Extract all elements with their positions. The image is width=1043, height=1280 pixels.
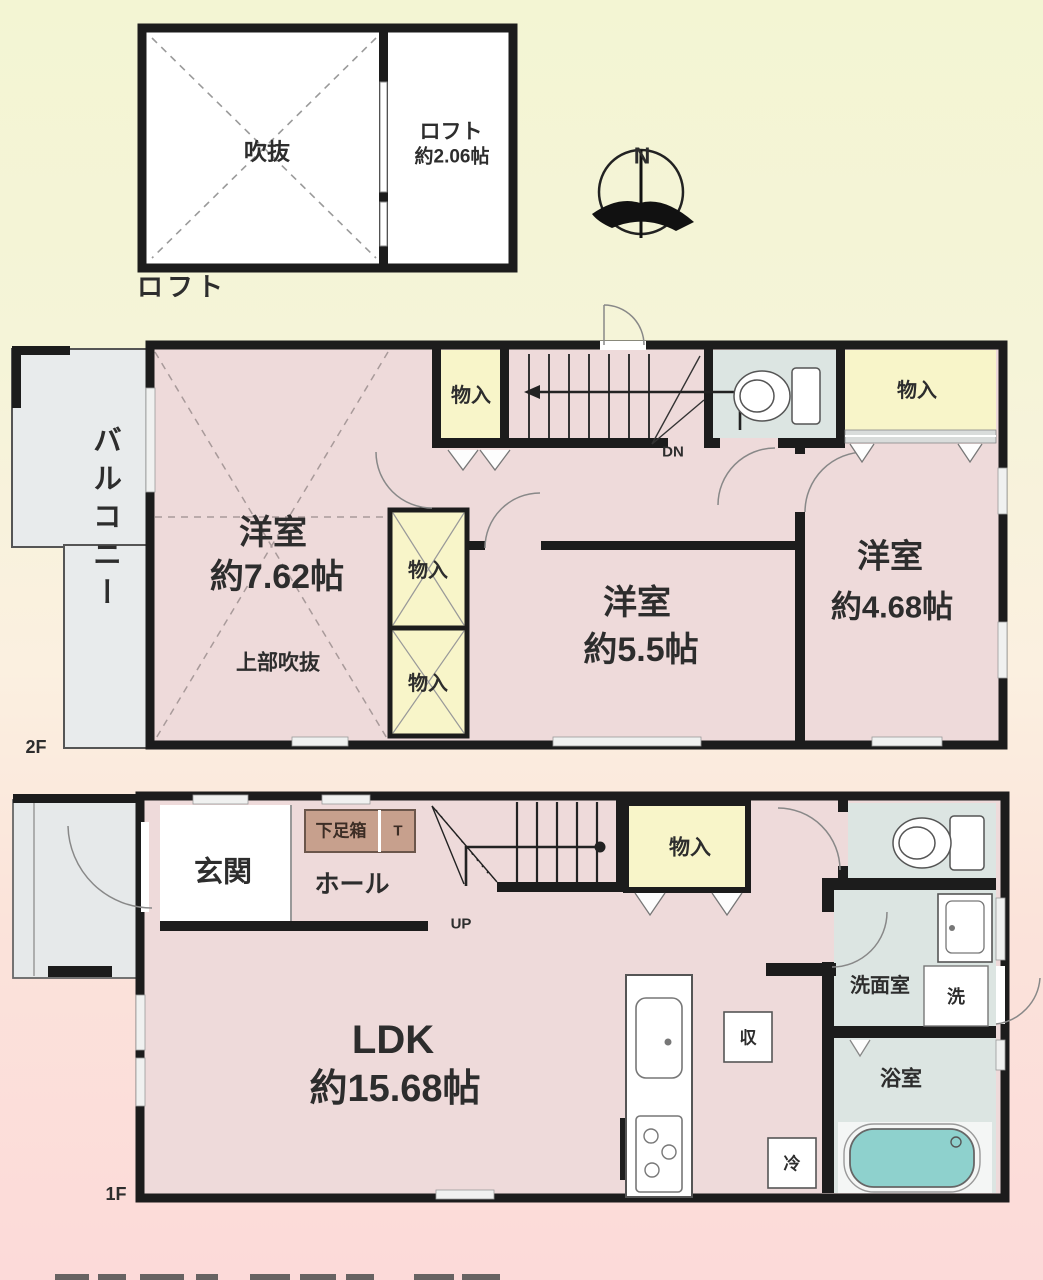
closet-1f-label: 物入 [669, 838, 711, 859]
room-center-size: 約5.5帖 [583, 633, 698, 667]
storage-label: 収 [740, 1030, 757, 1047]
toilet-fixture-1f [893, 816, 984, 870]
entrance-label: 玄関 [194, 859, 252, 888]
closet-mid-2-label: 物入 [408, 674, 448, 694]
room-east-name: 洋室 [857, 540, 923, 573]
kitchen-counter [626, 975, 692, 1197]
floor2-plan [12, 305, 1007, 748]
toilet-fixture-2f [734, 368, 820, 424]
room-west-size: 約7.62帖 [210, 560, 344, 594]
floor1-label: 1F [105, 1185, 126, 1203]
compass-needle [592, 201, 694, 231]
balcony-label: バルコニー [90, 425, 119, 615]
loft-room-size: 約2.06帖 [415, 148, 490, 167]
shoe-cabinet-label: 下足箱 [316, 823, 367, 840]
stairs-up-label: UP [451, 917, 472, 932]
loft-caption: ロフト [137, 274, 227, 300]
compass-north-label: N [634, 145, 651, 168]
room-west-name: 洋室 [239, 516, 307, 550]
hall-label: ホール [314, 873, 389, 898]
closet-top-label: 物入 [451, 386, 491, 406]
bathroom-label: 浴室 [880, 1069, 922, 1090]
loft-void-label: 吹抜 [244, 141, 290, 164]
washer-label: 洗 [947, 988, 965, 1006]
room-center-name: 洋室 [603, 586, 671, 620]
ldk-size: 約15.68帖 [309, 1070, 480, 1108]
loft-room-name: ロフト [420, 122, 483, 143]
porch [13, 800, 140, 978]
shoe-cabinet-side-label: T [393, 824, 402, 839]
bathtub [844, 1124, 980, 1192]
stairs-down-label: DN [662, 445, 684, 460]
floor-plan-canvas: 吹抜 ロフト 約2.06帖 ロフト N 2F バルコニー 物入 物入 DN 洋室… [0, 0, 1043, 1280]
closet-east-label: 物入 [897, 381, 937, 401]
door-top-2f [600, 305, 646, 350]
ldk-name: LDK [352, 1020, 434, 1060]
balcony [12, 349, 150, 547]
washroom-label: 洗面室 [850, 976, 910, 996]
fridge-label: 冷 [784, 1156, 801, 1173]
floor2-label: 2F [25, 738, 46, 756]
room-east-size: 約4.68帖 [831, 592, 953, 623]
kitchen-sink [636, 998, 682, 1078]
room-west-note: 上部吹抜 [236, 653, 320, 674]
closet-mid-1-label: 物入 [408, 561, 448, 581]
